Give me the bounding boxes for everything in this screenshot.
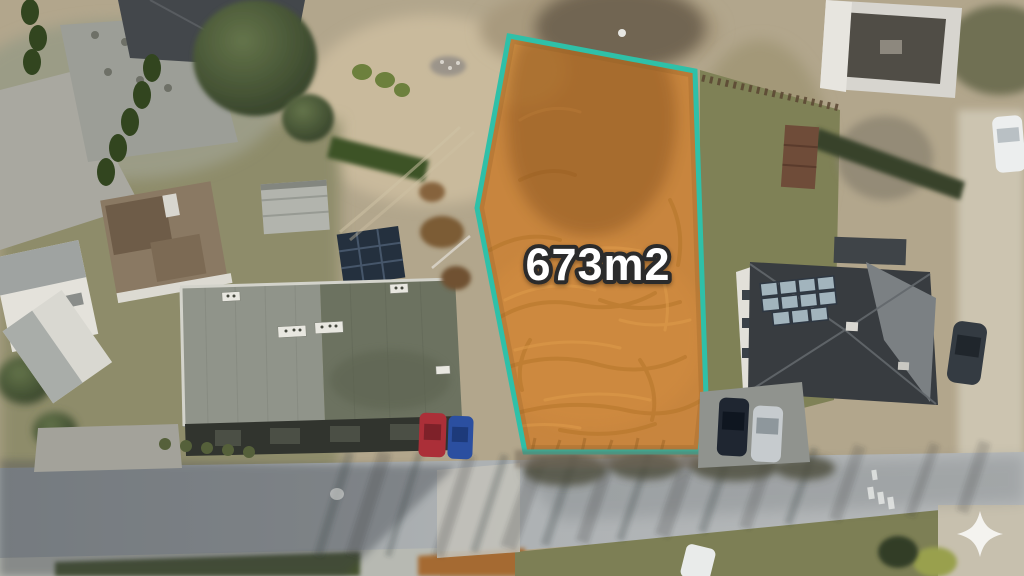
- ground-solar-panels: [337, 226, 406, 286]
- silver-car: [751, 405, 784, 462]
- garage-roof: [834, 237, 907, 265]
- roadside-tree: [878, 536, 918, 568]
- roadside-bush: [913, 547, 957, 576]
- aerial-photo: 673m2: [0, 0, 1024, 576]
- unfinished-building: [820, 0, 962, 98]
- shed: [260, 180, 329, 234]
- white-car-top-right: [992, 115, 1024, 173]
- dark-car: [717, 397, 750, 456]
- front-pavement: [34, 424, 182, 472]
- road-mark: [330, 488, 344, 500]
- brown-shed: [781, 125, 819, 189]
- plot-area-label: 673m2: [525, 239, 670, 290]
- well-cover: [618, 29, 626, 37]
